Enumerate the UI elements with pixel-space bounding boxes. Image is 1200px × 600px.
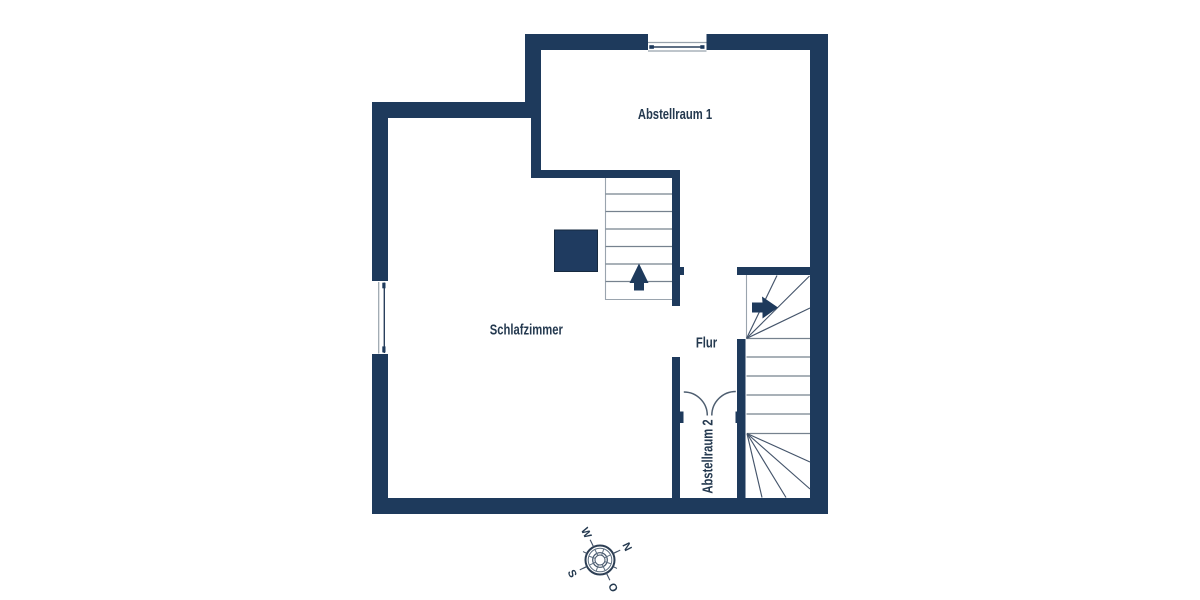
svg-text:Schlafzimmer: Schlafzimmer [490, 321, 563, 338]
svg-text:Abstellraum 1: Abstellraum 1 [638, 105, 712, 122]
svg-text:Flur: Flur [696, 334, 717, 351]
svg-text:Abstellraum 2: Abstellraum 2 [699, 419, 716, 493]
